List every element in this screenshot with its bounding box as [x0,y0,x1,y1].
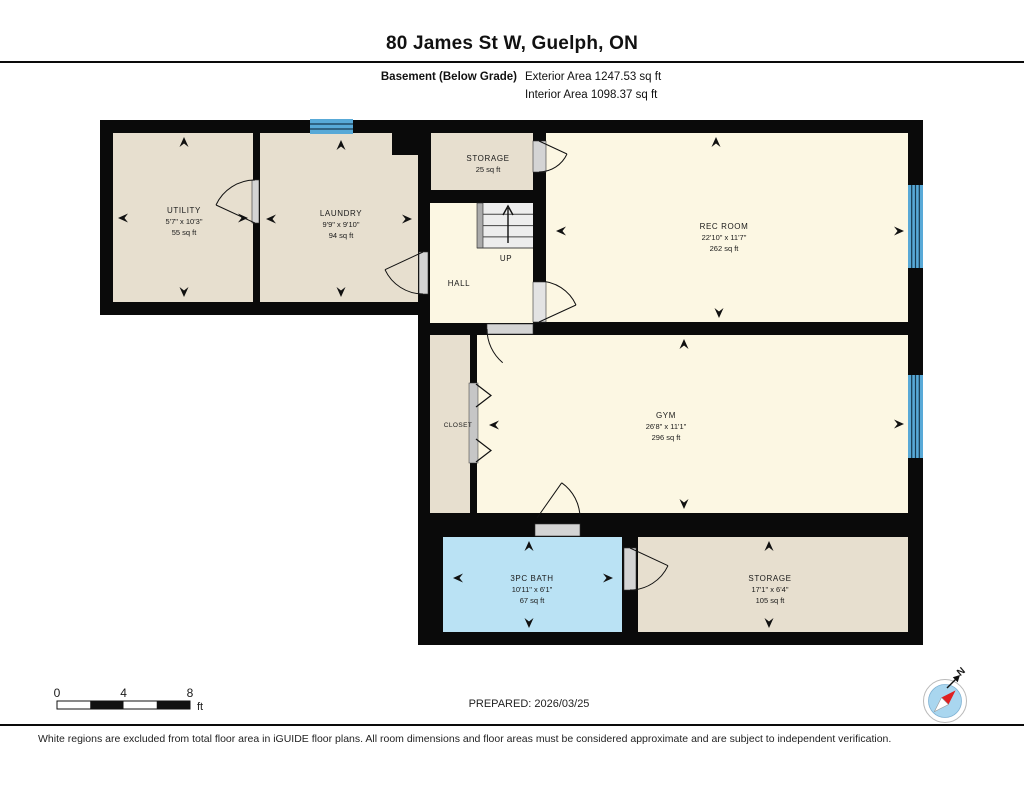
opening-hall-gym [487,324,533,334]
compass: N [924,666,968,723]
disclaimer-text: White regions are excluded from total fl… [38,733,998,745]
room-label-storage-top: STORAGE [466,154,509,163]
room-label-utility: UTILITY [167,206,201,215]
stairs-up-label: UP [500,254,512,263]
window-rec-right [908,185,923,268]
door-storage-rec [533,141,546,172]
laundry-corner-notch [392,133,418,155]
door-hall-rec [533,282,546,322]
stair-stringer [477,203,483,248]
room-label-hall: HALL [448,279,470,288]
window-glass [310,119,353,134]
door-gym-bath [535,524,580,536]
room-area-storage-bottom: 105 sq ft [756,596,786,605]
room-label-gym: GYM [656,411,676,420]
room-label-closet: CLOSET [444,422,472,429]
room-label-rec: REC ROOM [700,222,749,231]
door-laundry-hall [419,252,428,294]
room-label-storage-bottom: STORAGE [748,574,791,583]
room-dims-utility: 5'7" x 10'3" [166,217,203,226]
door-utility-laundry [252,180,259,223]
door-bath-storage [624,548,636,590]
room-area-laundry: 94 sq ft [329,231,355,240]
room-area-gym: 296 sq ft [652,433,682,442]
room-area-storage-top: 25 sq ft [476,165,502,174]
staircase [477,203,533,248]
floor-plan-canvas: UTILITY 5'7" x 10'3" 55 sq ft LAUNDRY 9'… [0,0,1024,791]
window-gym-right [908,375,923,458]
room-label-bath: 3PC BATH [510,574,553,583]
room-dims-storage-bottom: 17'1" x 6'4" [752,585,789,594]
room-dims-bath: 10'11" x 6'1" [512,585,553,594]
window-laundry-top [310,119,353,134]
floor-plan-page: 80 James St W, Guelph, ON Basement (Belo… [0,0,1024,791]
room-dims-gym: 26'8" x 11'1" [646,422,687,431]
room-area-bath: 67 sq ft [520,596,546,605]
room-label-laundry: LAUNDRY [320,209,362,218]
room-dims-rec: 22'10" x 11'7" [702,233,747,242]
prepared-date: PREPARED: 2026/03/25 [34,698,1024,710]
room-dims-laundry: 9'9" x 9'10" [323,220,360,229]
footer-divider [0,724,1024,726]
room-area-rec: 262 sq ft [710,244,740,253]
room-area-utility: 55 sq ft [172,228,198,237]
room-gym-floor [477,335,908,513]
